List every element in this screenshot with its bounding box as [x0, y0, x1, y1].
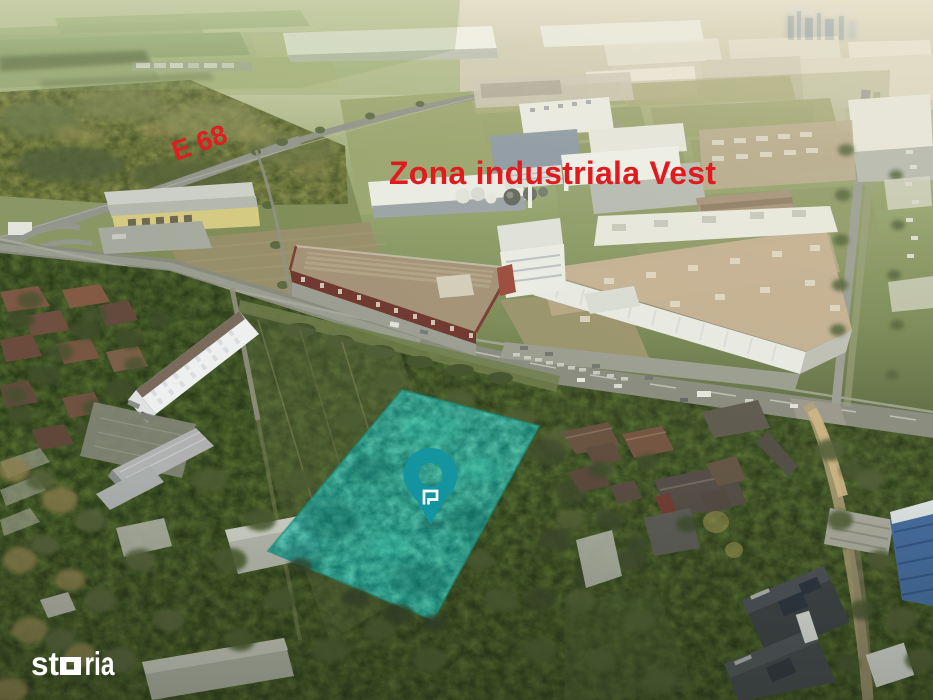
svg-text:Zona industriala Vest: Zona industriala Vest	[389, 155, 716, 191]
svg-text:st: st	[31, 645, 59, 682]
svg-text:ria: ria	[85, 645, 115, 682]
